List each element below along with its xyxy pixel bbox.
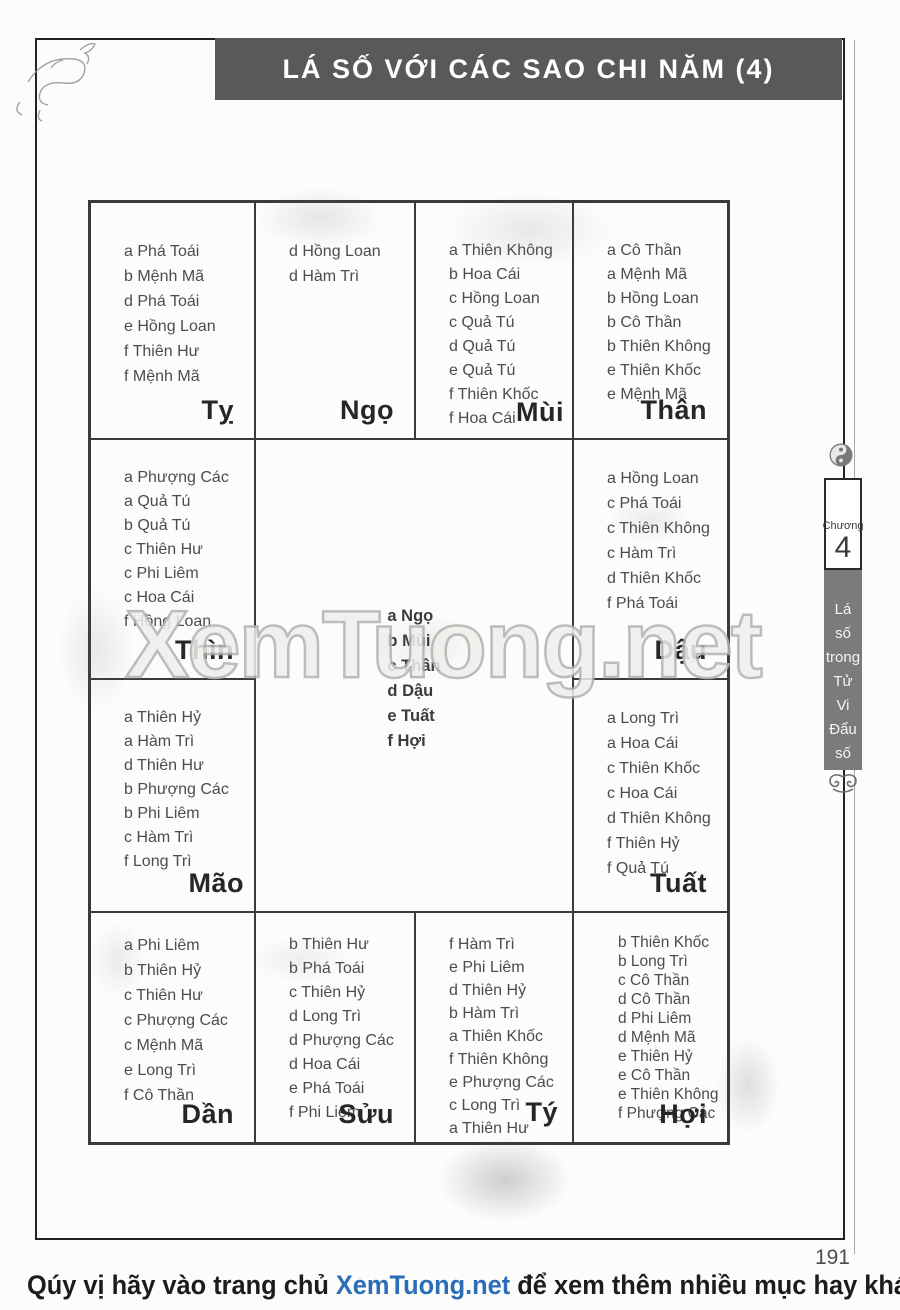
palace-label-thin: Thìn	[175, 635, 234, 666]
star-entry: a Thiên Không	[449, 239, 572, 263]
branch-entry: a Ngọ	[387, 604, 440, 629]
star-entry: e Phi Liêm	[449, 956, 572, 979]
star-entry: e Phượng Các	[449, 1071, 572, 1094]
star-entry: d Hoa Cái	[289, 1053, 414, 1077]
star-entry: a Quả Tú	[124, 490, 254, 514]
corner-sketch-decoration	[8, 40, 108, 130]
star-entry: e Thiên Hỷ	[618, 1047, 727, 1066]
star-entry: d Phá Toái	[124, 289, 254, 314]
page-gutter-line	[854, 40, 855, 1254]
star-entry: c Hàm Trì	[607, 541, 727, 566]
star-entry: c Mệnh Mã	[124, 1033, 254, 1058]
palace-cell-mao: a Thiên Hỷa Hàm Trìd Thiên Hưb Phượng Cá…	[90, 679, 255, 912]
palace-label-mao: Mão	[189, 868, 245, 899]
star-entry: c Phá Toái	[607, 491, 727, 516]
star-entry: b Hàm Trì	[449, 1002, 572, 1025]
branch-entry: e Tuất	[387, 704, 440, 729]
footer-promo-prefix: Qúy vị hãy vào trang chủ	[27, 1270, 336, 1300]
star-entry: e Thiên Khốc	[607, 359, 727, 383]
star-entry: c Hoa Cái	[607, 781, 727, 806]
star-entry: d Thiên Không	[607, 806, 727, 831]
star-list: d Hồng Loand Hàm Trì	[256, 203, 414, 289]
star-entry: a Hoa Cái	[607, 731, 727, 756]
star-entry: a Phượng Các	[124, 466, 254, 490]
star-entry: d Hàm Trì	[289, 264, 414, 289]
star-entry: c Cô Thần	[618, 971, 727, 990]
star-entry: d Hồng Loan	[289, 239, 414, 264]
star-entry: a Hàm Trì	[124, 730, 254, 754]
star-list: a Cô Thầna Mệnh Mãb Hồng Loanb Cô Thầnb …	[574, 203, 727, 407]
star-entry: d Phi Liêm	[618, 1009, 727, 1028]
star-entry: c Thiên Khốc	[607, 756, 727, 781]
footer-site-link[interactable]: XemTuong.net	[336, 1270, 510, 1300]
star-entry: d Thiên Hư	[124, 754, 254, 778]
star-entry: b Phi Liêm	[124, 802, 254, 826]
star-entry: d Thiên Khốc	[607, 566, 727, 591]
star-list: a Hồng Loanc Phá Toáic Thiên Khôngc Hàm …	[574, 440, 727, 616]
star-entry: a Phá Toái	[124, 239, 254, 264]
star-entry: c Thiên Không	[607, 516, 727, 541]
palace-label-than: Thân	[641, 395, 708, 426]
palace-cell-thin: a Phượng Cáca Quả Túb Quả Túc Thiên Hưc …	[90, 439, 255, 679]
star-entry: f Mệnh Mã	[124, 364, 254, 389]
star-entry: f Thiên Không	[449, 1048, 572, 1071]
palace-cell-hoi: b Thiên Khốcb Long Trìc Cô Thầnd Cô Thần…	[573, 912, 728, 1143]
star-entry: c Thiên Hỷ	[289, 981, 414, 1005]
palace-label-hoi: Hợi	[659, 1099, 707, 1130]
star-list: a Phá Toáib Mệnh Mãd Phá Toáie Hồng Loan…	[91, 203, 254, 389]
star-list: b Thiên Khốcb Long Trìc Cô Thầnd Cô Thần…	[574, 913, 727, 1123]
star-entry: d Mệnh Mã	[618, 1028, 727, 1047]
branch-entry: c Thân	[387, 654, 440, 679]
branch-entry: f Hợi	[387, 729, 440, 754]
star-entry: e Cô Thần	[618, 1066, 727, 1085]
palace-cell-ty-rat: f Hàm Trìe Phi Liêmd Thiên Hỷb Hàm Trìa …	[415, 912, 573, 1143]
branch-entry: b Mùi	[387, 629, 440, 654]
palace-label-ty: Tỵ	[201, 395, 234, 426]
palace-label-ngo: Ngọ	[340, 395, 394, 426]
star-entry: b Thiên Hỷ	[124, 958, 254, 983]
chapter-section-title: LÁ SỐ VỚI CÁC SAO CHI NĂM (4)	[215, 38, 842, 100]
star-entry: f Thiên Hỷ	[607, 831, 727, 856]
star-entry: f Phá Toái	[607, 591, 727, 616]
star-entry: b Thiên Hư	[289, 933, 414, 957]
star-entry: a Cô Thần	[607, 239, 727, 263]
star-list: a Phi Liêmb Thiên Hỷc Thiên Hưc Phượng C…	[91, 913, 254, 1108]
footer-promo-line: Qúy vị hãy vào trang chủ XemTuong.net để…	[27, 1270, 873, 1301]
star-entry: e Quả Tú	[449, 359, 572, 383]
star-list: a Thiên Hỷa Hàm Trìd Thiên Hưb Phượng Cá…	[91, 680, 254, 874]
star-list: a Long Trìa Hoa Cáic Thiên Khốcc Hoa Cái…	[574, 680, 727, 881]
palace-cell-dau: a Hồng Loanc Phá Toáic Thiên Khôngc Hàm …	[573, 439, 728, 679]
tu-vi-chart-grid: a Phá Toáib Mệnh Mãd Phá Toáie Hồng Loan…	[88, 200, 730, 1145]
star-entry: b Thiên Khốc	[618, 933, 727, 952]
star-entry: c Thiên Hư	[124, 983, 254, 1008]
star-entry: d Long Trì	[289, 1005, 414, 1029]
star-entry: b Phá Toái	[289, 957, 414, 981]
star-entry: b Long Trì	[618, 952, 727, 971]
branch-entry: d Dậu	[387, 679, 440, 704]
star-entry: c Phi Liêm	[124, 562, 254, 586]
star-entry: d Thiên Hỷ	[449, 979, 572, 1002]
star-entry: c Hàm Trì	[124, 826, 254, 850]
star-entry: b Thiên Không	[607, 335, 727, 359]
palace-cell-suu: b Thiên Hưb Phá Toáic Thiên Hỷd Long Trì…	[255, 912, 415, 1143]
star-entry: a Long Trì	[607, 706, 727, 731]
star-entry: a Mệnh Mã	[607, 263, 727, 287]
palace-cell-than: a Cô Thầna Mệnh Mãb Hồng Loanb Cô Thầnb …	[573, 202, 728, 439]
star-entry: a Phi Liêm	[124, 933, 254, 958]
star-entry: b Mệnh Mã	[124, 264, 254, 289]
star-entry: d Phượng Các	[289, 1029, 414, 1053]
star-entry: f Thiên Hư	[124, 339, 254, 364]
star-entry: f Hàm Trì	[449, 933, 572, 956]
star-entry: f Hồng Loan	[124, 610, 254, 634]
palace-cell-ty: a Phá Toáib Mệnh Mãd Phá Toáie Hồng Loan…	[90, 202, 255, 439]
star-entry: a Hồng Loan	[607, 466, 727, 491]
star-entry: b Hoa Cái	[449, 263, 572, 287]
star-entry: e Long Trì	[124, 1058, 254, 1083]
star-entry: e Hồng Loan	[124, 314, 254, 339]
palace-label-tuat: Tuất	[650, 868, 707, 899]
star-entry: b Cô Thần	[607, 311, 727, 335]
star-entry: d Cô Thần	[618, 990, 727, 1009]
star-entry: b Phượng Các	[124, 778, 254, 802]
star-entry: c Thiên Hư	[124, 538, 254, 562]
star-entry: a Thiên Hỷ	[124, 706, 254, 730]
palace-label-ty-rat: Tý	[525, 1097, 558, 1128]
star-entry: c Hồng Loan	[449, 287, 572, 311]
palace-label-dau: Dậu	[654, 635, 707, 666]
palace-cell-ngo: d Hồng Loand Hàm Trì Ngọ	[255, 202, 415, 439]
scanned-book-page: LÁ SỐ VỚI CÁC SAO CHI NĂM (4) a Phá Toái…	[0, 0, 900, 1310]
palace-label-mui: Mùi	[516, 397, 564, 428]
center-branch-list: a Ngọb Mùic Thând Dậue Tuấtf Hợi	[387, 598, 440, 754]
star-entry: b Hồng Loan	[607, 287, 727, 311]
page-title: LÁ SỐ VỚI CÁC SAO CHI NĂM (4)	[282, 54, 774, 85]
star-entry: c Quả Tú	[449, 311, 572, 335]
star-entry: e Phá Toái	[289, 1077, 414, 1101]
palace-label-suu: Sửu	[338, 1099, 394, 1130]
palace-cell-dan: a Phi Liêmb Thiên Hỷc Thiên Hưc Phượng C…	[90, 912, 255, 1143]
star-entry: c Phượng Các	[124, 1008, 254, 1033]
palace-label-dan: Dần	[181, 1099, 234, 1130]
star-entry: c Hoa Cái	[124, 586, 254, 610]
star-list: a Phượng Cáca Quả Túb Quả Túc Thiên Hưc …	[91, 440, 254, 634]
page-number: 191	[815, 1246, 850, 1270]
star-entry: d Quả Tú	[449, 335, 572, 359]
palace-cell-mui: a Thiên Khôngb Hoa Cáic Hồng Loanc Quả T…	[415, 202, 573, 439]
palace-cell-tuat: a Long Trìa Hoa Cáic Thiên Khốcc Hoa Cái…	[573, 679, 728, 912]
center-legend-cell: a Ngọb Mùic Thând Dậue Tuấtf Hợi	[255, 439, 573, 912]
star-entry: b Quả Tú	[124, 514, 254, 538]
star-entry: a Thiên Khốc	[449, 1025, 572, 1048]
footer-promo-suffix: để xem thêm nhiều mục hay khác	[510, 1270, 900, 1300]
star-list: b Thiên Hưb Phá Toáic Thiên Hỷd Long Trì…	[256, 913, 414, 1125]
